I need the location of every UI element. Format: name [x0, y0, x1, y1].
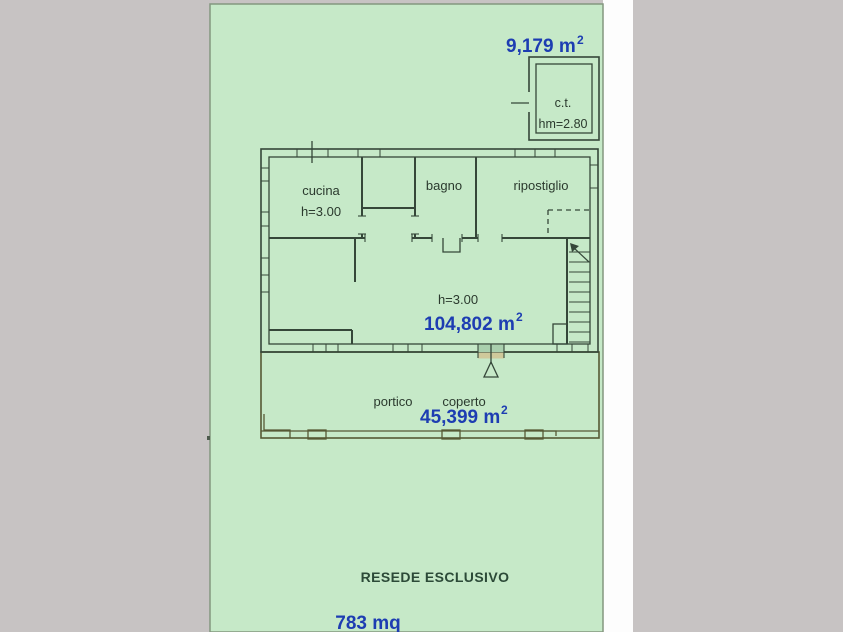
cucina-height-label: h=3.00 — [301, 204, 341, 219]
ct-door-opening — [525, 92, 534, 112]
living-height-label: h=3.00 — [438, 292, 478, 307]
resede-area-label: 783 mq — [335, 613, 400, 632]
living-area-label: 104,802 m — [424, 314, 515, 335]
boundary-mark — [207, 436, 210, 440]
bagno-room-label: bagno — [426, 178, 462, 193]
ripostiglio-room-label: ripostiglio — [514, 178, 569, 193]
plot-area-label: 9,179 m — [506, 36, 576, 57]
white-margin-strip — [603, 0, 633, 632]
living-area-sup: 2 — [516, 310, 523, 324]
portico-area-sup: 2 — [501, 403, 508, 417]
ct-height-label: hm=2.80 — [539, 117, 588, 131]
floor-plan-page: 9,179 m 2 c.t. hm=2.80 cucina h=3.00 bag… — [0, 0, 843, 632]
ct-room-label: c.t. — [555, 96, 572, 110]
portico-area-label: 45,399 m — [420, 407, 500, 428]
floor-plan-svg: 9,179 m 2 c.t. hm=2.80 cucina h=3.00 bag… — [0, 0, 843, 632]
plot-area-sup: 2 — [577, 33, 584, 47]
cucina-room-label: cucina — [302, 183, 340, 198]
portico-label-1: portico — [373, 394, 412, 409]
resede-title: RESEDE ESCLUSIVO — [361, 569, 510, 585]
